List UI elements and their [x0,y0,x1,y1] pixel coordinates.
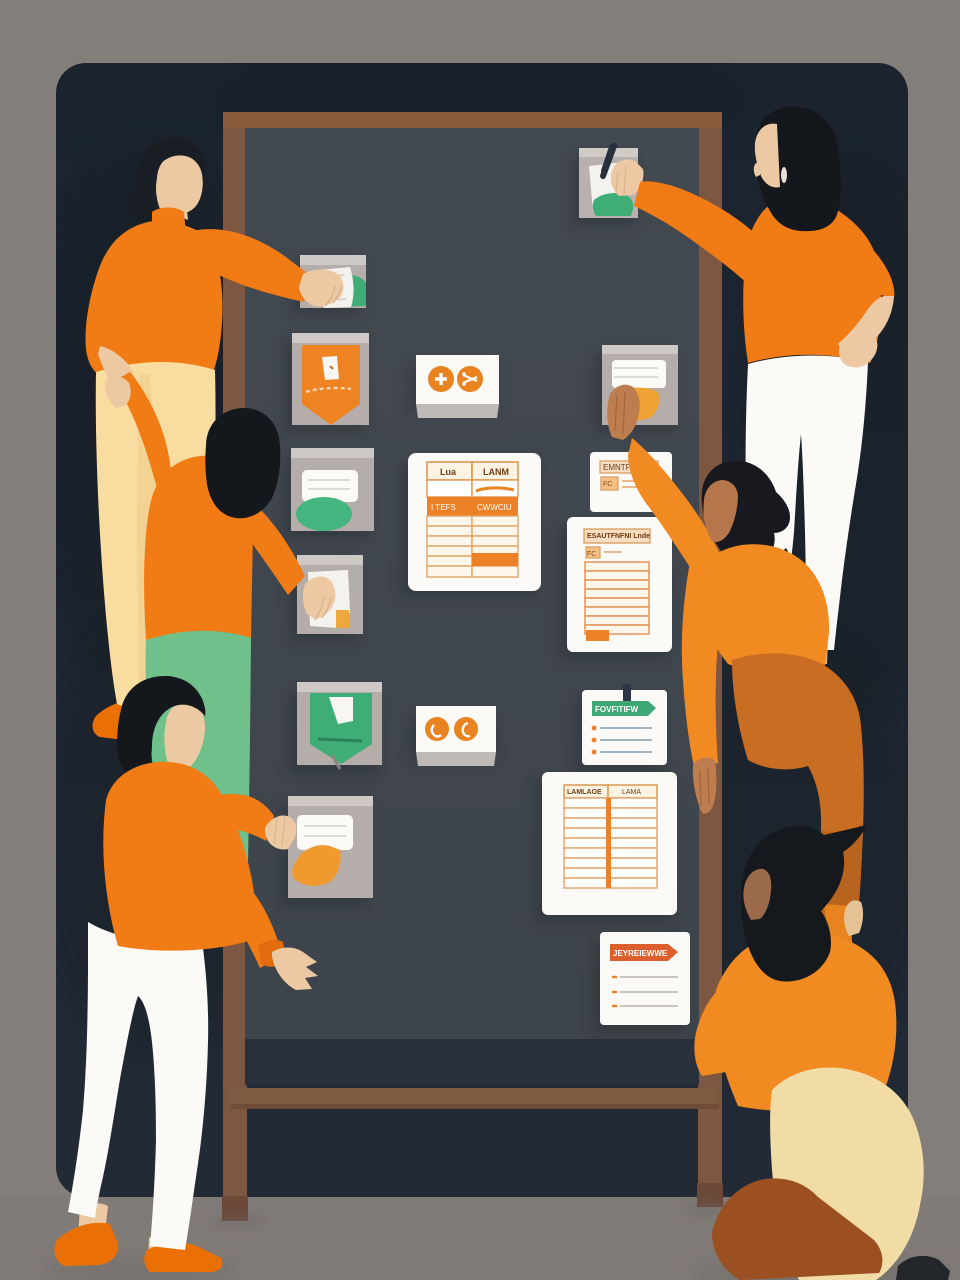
svg-text:LAMA: LAMA [622,789,641,796]
svg-text:FC: FC [603,481,612,488]
svg-text:LANM: LANM [483,467,509,477]
svg-text:CWWCIU: CWWCIU [477,503,512,512]
svg-text:I TEFS: I TEFS [431,503,456,512]
svg-text:ESAUTFNFNI Lnde: ESAUTFNFNI Lnde [587,533,650,540]
svg-text:FC: FC [587,551,596,558]
svg-text:FOVFITIFW: FOVFITIFW [595,705,639,714]
svg-text:Lua: Lua [440,467,457,477]
svg-text:JEYREIEWWE: JEYREIEWWE [613,949,668,958]
svg-text:LAMLAOE: LAMLAOE [567,789,602,796]
